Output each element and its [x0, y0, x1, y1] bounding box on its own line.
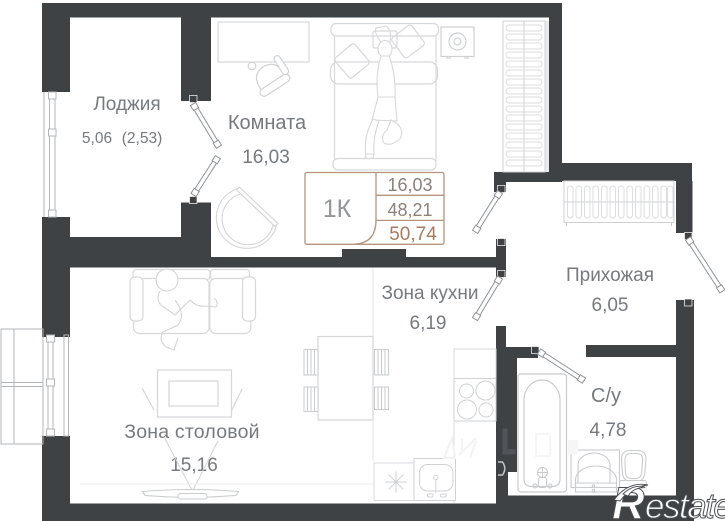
svg-text:С/у: С/у	[591, 385, 621, 407]
svg-text:Зона кухни: Зона кухни	[381, 283, 478, 304]
svg-text:estate: estate	[645, 487, 725, 521]
svg-text:15,16: 15,16	[170, 455, 218, 476]
svg-text:48,21: 48,21	[387, 200, 432, 220]
svg-text:16,03: 16,03	[242, 147, 290, 168]
svg-text:6,19: 6,19	[410, 313, 447, 334]
svg-text:4,78: 4,78	[590, 420, 627, 441]
svg-text:(2,53): (2,53)	[122, 130, 163, 147]
svg-text:5,06: 5,06	[82, 130, 112, 147]
svg-text:Лоджия: Лоджия	[93, 94, 160, 115]
svg-text:Зона столовой: Зона столовой	[124, 421, 259, 443]
svg-text:50,74: 50,74	[389, 224, 437, 245]
svg-text:1К: 1К	[323, 195, 352, 223]
svg-text:Прихожая: Прихожая	[566, 265, 654, 286]
svg-text:6,05: 6,05	[592, 295, 629, 316]
svg-text:Комната: Комната	[228, 112, 307, 134]
svg-text:16,03: 16,03	[387, 175, 432, 195]
